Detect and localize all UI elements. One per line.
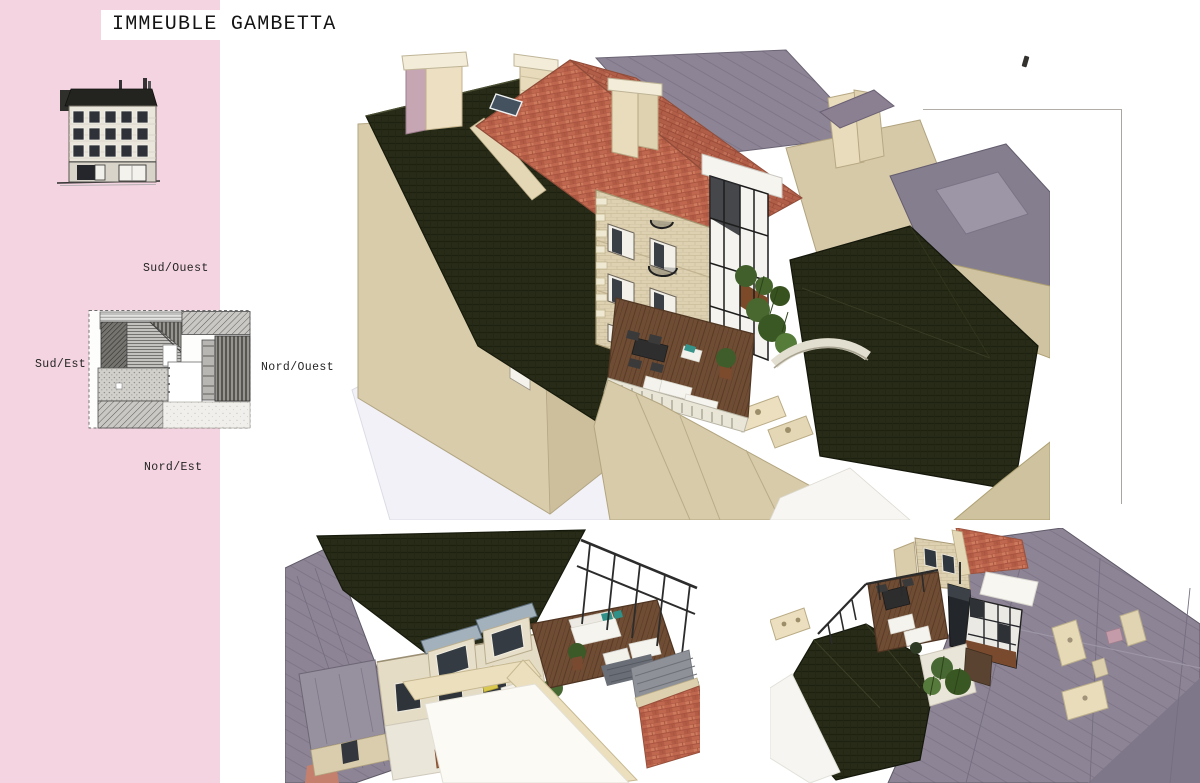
roof-plan-graphic bbox=[89, 311, 250, 429]
chimney-mauve bbox=[402, 52, 468, 134]
orientation-label-nord-ouest: Nord/Ouest bbox=[261, 361, 334, 374]
aerial-view-main bbox=[350, 28, 1050, 520]
orientation-label-nord-est: Nord/Est bbox=[144, 461, 202, 474]
aerial-view-courtyard bbox=[285, 528, 700, 783]
aerial-view-rear bbox=[770, 528, 1200, 783]
orientation-label-sud-est: Sud/Est bbox=[35, 358, 86, 371]
scanned-presentation-page: IMMEUBLE GAMBETTA bbox=[0, 0, 1200, 783]
orientation-label-sud-ouest: Sud/Ouest bbox=[143, 262, 209, 275]
left-annex bbox=[299, 660, 389, 776]
elevation-graphic bbox=[57, 78, 160, 186]
facade-elevation-drawing bbox=[57, 78, 162, 188]
potted-plant bbox=[716, 348, 736, 368]
roof-plan-drawing bbox=[88, 306, 253, 431]
page-title: IMMEUBLE GAMBETTA bbox=[101, 10, 348, 40]
stairs-and-red-roof bbox=[631, 650, 700, 768]
